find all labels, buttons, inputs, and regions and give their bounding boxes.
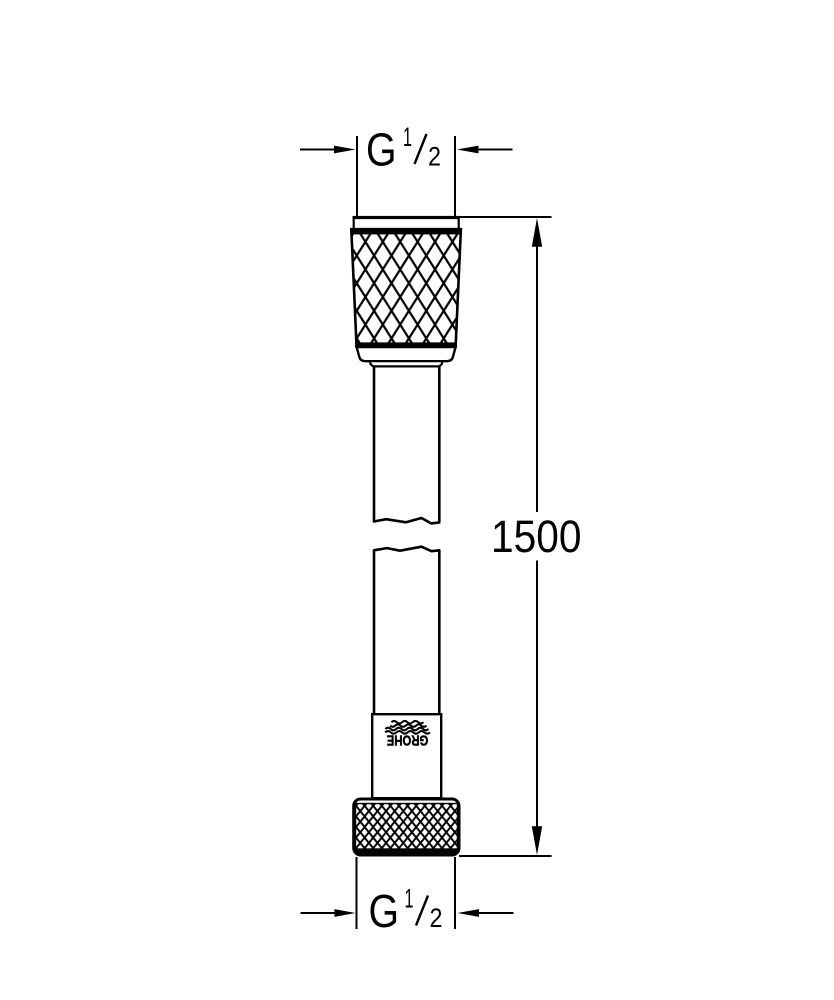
svg-text:G: G — [366, 124, 397, 176]
svg-text:2: 2 — [430, 903, 443, 933]
svg-text:1: 1 — [405, 884, 414, 914]
svg-text:G: G — [369, 885, 400, 937]
svg-text:2: 2 — [428, 142, 441, 172]
svg-text:1: 1 — [403, 122, 412, 152]
svg-text:1500: 1500 — [491, 511, 582, 562]
